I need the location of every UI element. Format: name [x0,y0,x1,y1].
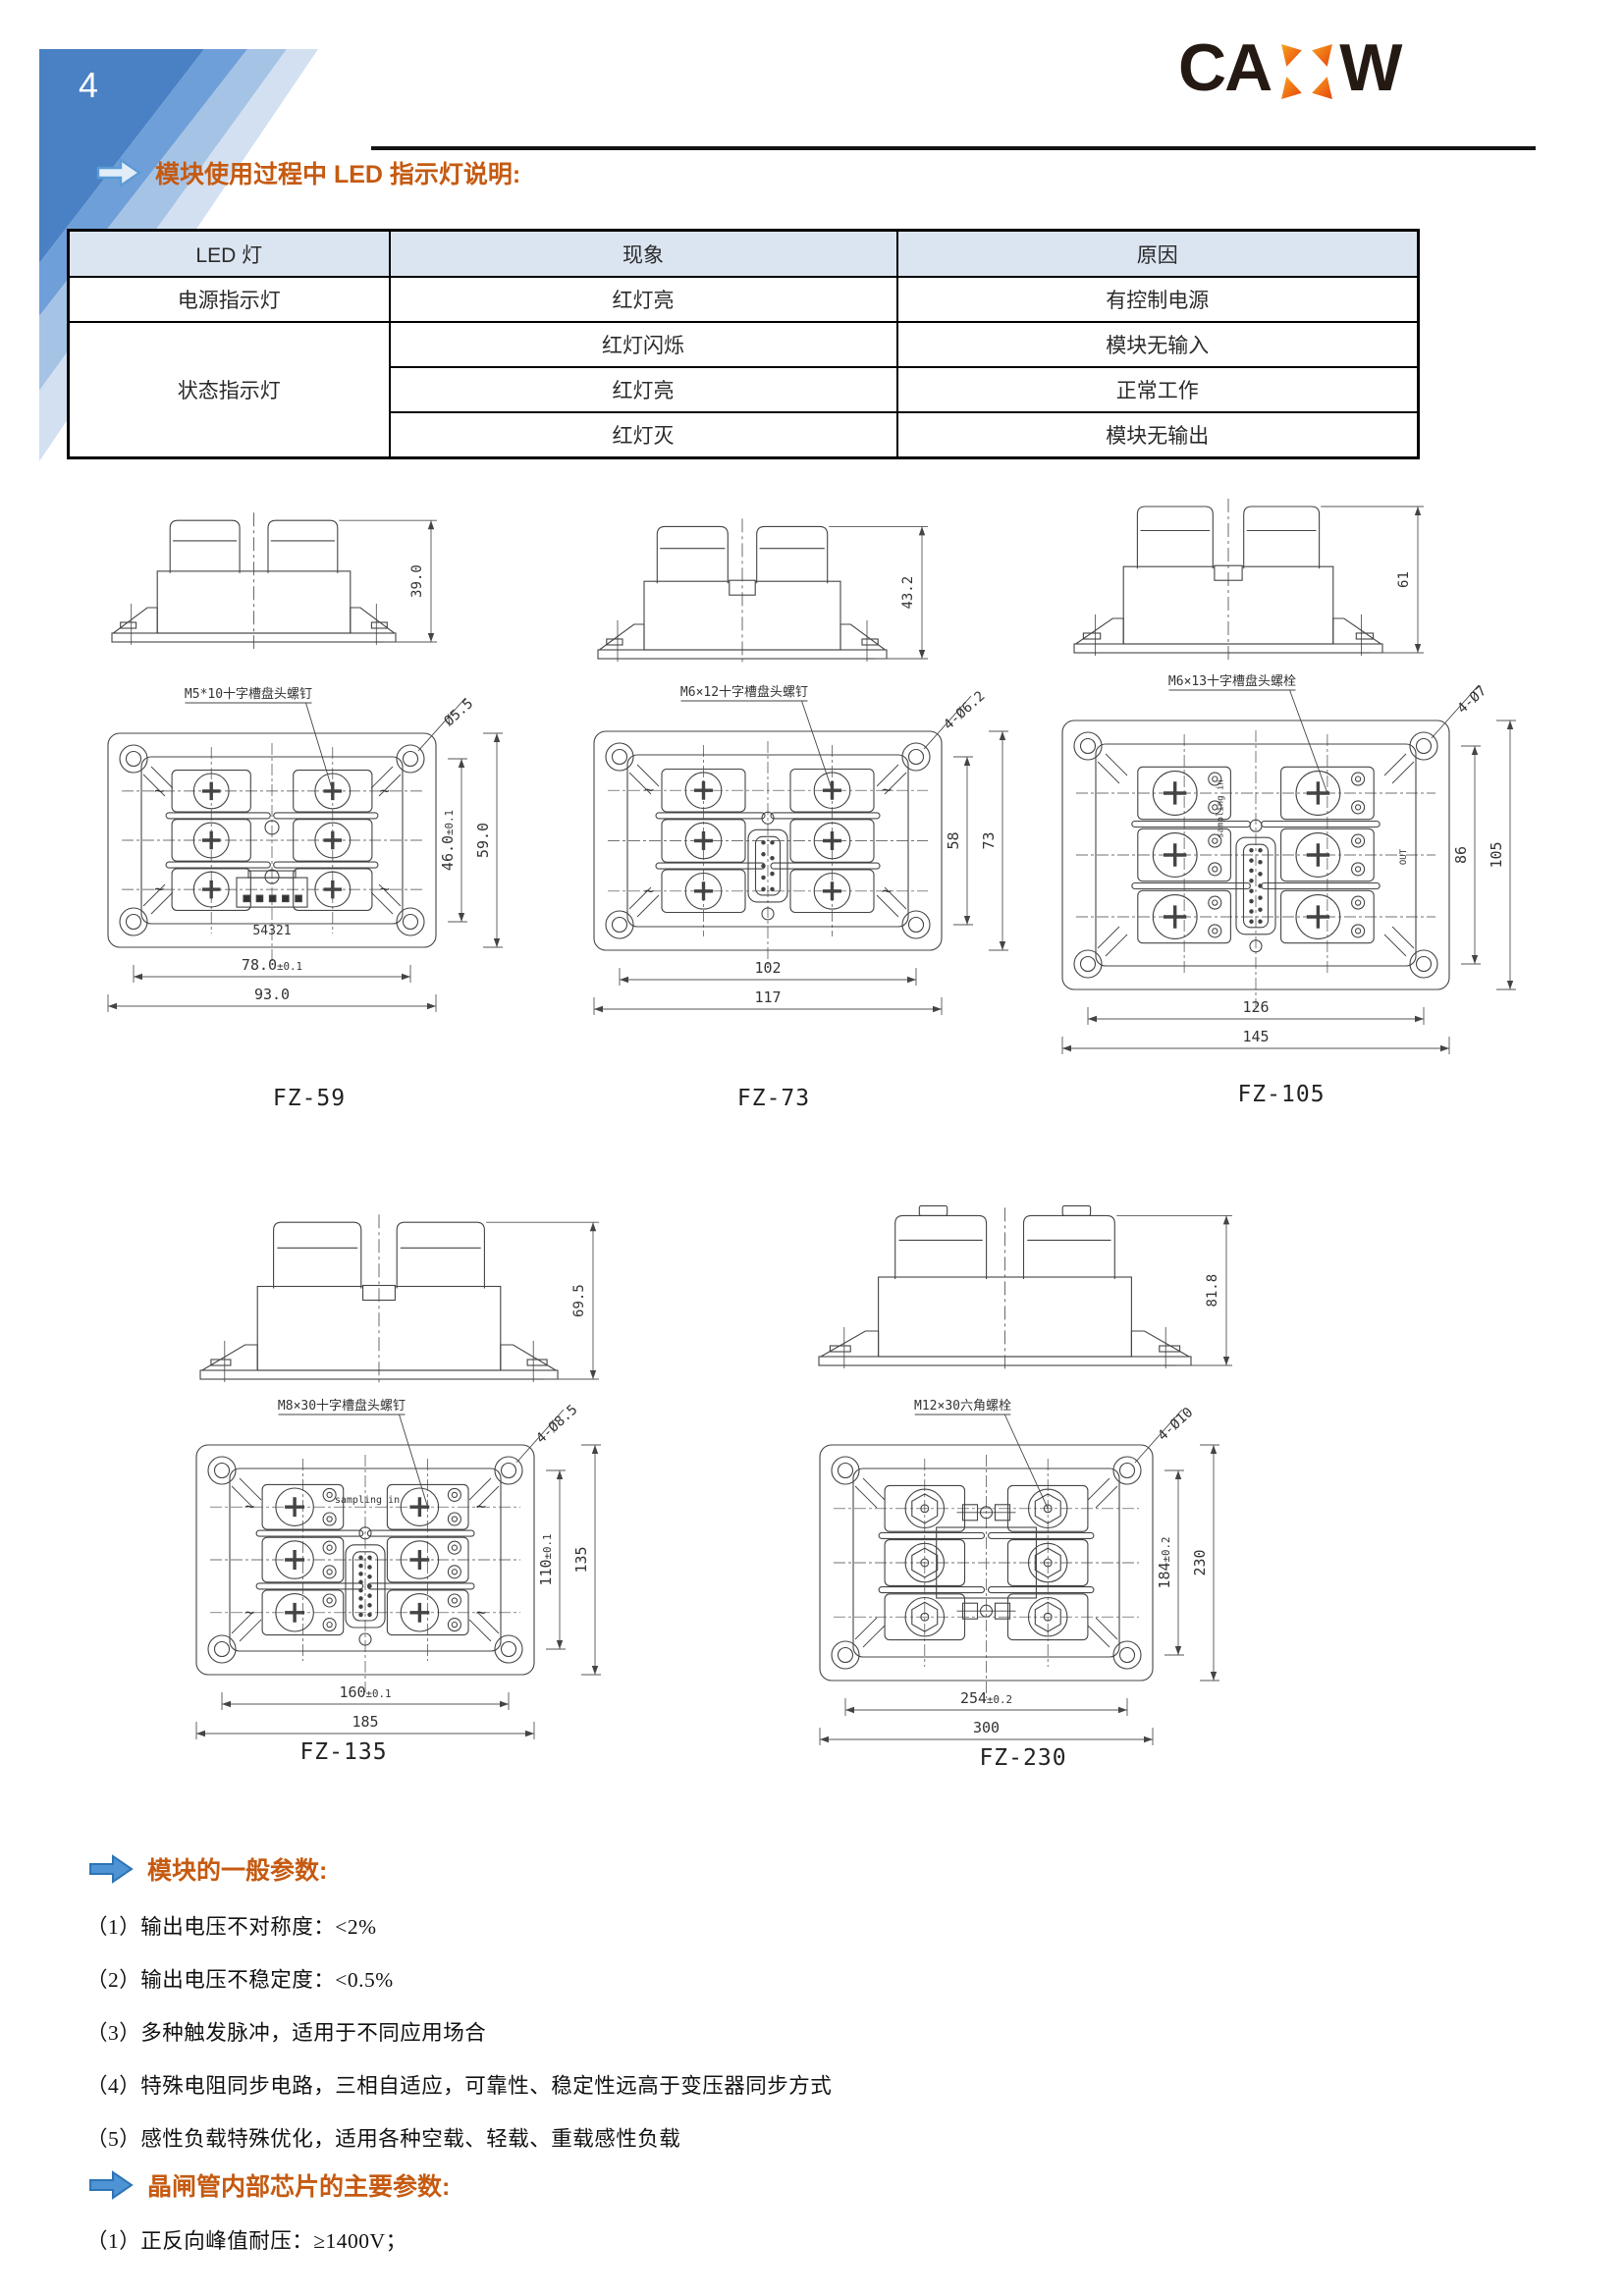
chip-params-list: （1）正反向峰值耐压：≥1400V； [86,2224,1216,2277]
general-params-list: （1）输出电压不对称度：<2%（2）输出电压不稳定度：<0.5%（3）多种触发脉… [86,1910,1216,2175]
svg-text:~: ~ [882,881,892,901]
fz105-out-label: OUT [1399,848,1409,865]
logo-text-right: W [1339,29,1400,106]
fz135-height-dim: 69.5 [571,1284,587,1317]
fz73-caption: FZ-73 [737,1086,810,1111]
fz230-dim-h-outer: 300 [973,1719,1000,1736]
fz59-hole-label: Ø5.5 [441,696,476,729]
fz59-dim-h-inner: 78.0±0.1 [242,956,302,974]
param-item-2: （2）输出电压不稳定度：<0.5% [86,1963,1216,1994]
header-rule [371,146,1536,150]
fz105-height-dim: 61 [1396,571,1412,588]
fz59-connector-label: 54321 [252,924,291,938]
fz59-caption: FZ-59 [273,1086,346,1111]
fz105-extra-label: sampling in [1217,779,1226,838]
svg-text:~: ~ [154,880,164,899]
params-section-heading: 模块的一般参数: [88,1851,327,1887]
cell-phenomenon: 红灯闪烁 [390,322,897,367]
logo-text-left: CA [1178,29,1271,106]
fz105-dim-v-inner: 86 [1452,846,1470,864]
svg-text:~: ~ [476,1603,486,1623]
fz73-front-view: ~~~~M6×12十字槽盘头螺钉4-Ø6.25873102117 [584,680,1026,1019]
fz135-dim-v-outer: 135 [572,1546,590,1573]
arrow-right-icon [88,2169,134,2201]
fz73-dim-v-inner: 58 [945,831,962,849]
param-item-4: （4）特殊电阻同步电路，三相自适应，可靠性、稳定性远高于变压器同步方式 [86,2069,1216,2100]
cell-reason: 有控制电源 [897,277,1419,322]
fz135-side-view: 69.5 [196,1203,609,1392]
fz135-front-view: ~~~~sampling inM8×30十字槽盘头螺钉4-Ø8.5110±0.1… [187,1394,619,1743]
page-number: 4 [79,65,98,106]
fz73-height-dim: 43.2 [900,576,916,610]
logo: CA W [1178,29,1400,106]
fz230-caption: FZ-230 [979,1745,1066,1771]
cell-led: 电源指示灯 [69,277,390,322]
led-heading-text: 模块使用过程中 LED 指示灯说明: [155,155,520,190]
cell-reason: 模块无输出 [897,412,1419,458]
arrow-right-icon [96,157,141,188]
fz135-dim-v-inner: 110±0.1 [537,1533,555,1585]
fz105-dim-h-outer: 145 [1242,1028,1269,1045]
arrow-right-icon [88,1853,134,1885]
svg-text:~: ~ [154,781,164,801]
fz73-dim-v-outer: 73 [980,831,998,849]
col-header-reason: 原因 [897,231,1419,278]
fz59-side-view: 39.0 [108,506,447,655]
fz135-extra-label: sampling in [335,1495,400,1506]
svg-text:~: ~ [644,881,654,901]
fz230-hole-label: 4-Ø10 [1155,1405,1196,1444]
fz59-front-view: ~~~~54321M5*10十字槽盘头螺钉Ø5.546.0±0.159.078.… [98,682,520,1016]
fz59-height-dim: 39.0 [409,564,425,598]
fz59-dim-v-outer: 59.0 [474,823,492,858]
fz73-dim-h-inner: 102 [754,959,781,977]
param-item-3: （3）多种触发脉冲，适用于不同应用场合 [86,2016,1216,2047]
fz105-caption: FZ-105 [1237,1082,1325,1107]
fz105-front-view: sampling inOUTM6×13十字槽盘头螺栓4-Ø78610512614… [1053,669,1534,1058]
fz230-dim-v-outer: 230 [1191,1549,1209,1575]
fz105-side-view: 61 [1070,489,1434,666]
fz105-screw-label: M6×13十字槽盘头螺栓 [1168,673,1296,689]
svg-text:~: ~ [380,781,390,801]
fz230-screw-label: M12×30六角螺栓 [914,1399,1011,1414]
table-row: 电源指示灯 红灯亮 有控制电源 [69,277,1419,322]
fz73-dim-h-outer: 117 [754,988,781,1006]
fz135-screw-label: M8×30十字槽盘头螺钉 [278,1398,406,1414]
cell-reason: 模块无输入 [897,322,1419,367]
param-item-5: （5）感性负载特殊优化，适用各种空载、轻载、重载感性负载 [86,2122,1216,2153]
col-header-phenomenon: 现象 [390,231,897,278]
cell-phenomenon: 红灯灭 [390,412,897,458]
logo-x-icon [1278,43,1335,100]
col-header-led: LED 灯 [69,231,390,278]
fz230-front-view: M12×30六角螺栓4-Ø10184±0.2230254±0.2300 [810,1394,1237,1749]
fz230-dim-v-inner: 184±0.2 [1156,1536,1173,1588]
fz105-dim-v-outer: 105 [1488,841,1505,868]
fz135-caption: FZ-135 [299,1739,387,1765]
svg-text:~: ~ [244,1603,254,1623]
fz135-dim-h-outer: 185 [352,1713,378,1731]
cell-phenomenon: 红灯亮 [390,277,897,322]
fz59-dim-h-outer: 93.0 [254,986,290,1003]
fz73-side-view: 43.2 [594,510,938,671]
fz105-hole-label: 4-Ø7 [1454,683,1489,717]
table-header-row: LED 灯 现象 原因 [69,231,1419,278]
chip-section-heading: 晶闸管内部芯片的主要参数: [88,2167,450,2203]
fz105-dim-h-inner: 126 [1242,998,1269,1016]
chip-heading-text: 晶闸管内部芯片的主要参数: [147,2167,450,2203]
led-indicator-table: LED 灯 现象 原因 电源指示灯 红灯亮 有控制电源 状态指示灯 红灯闪烁 模… [67,229,1420,459]
fz230-dim-h-inner: 254±0.2 [960,1689,1012,1707]
datasheet-page: 4 CA W 模块使用过程中 LED 指示灯说明: LED 灯 [0,0,1624,2296]
fz230-height-dim: 81.8 [1205,1274,1220,1308]
led-section-heading: 模块使用过程中 LED 指示灯说明: [96,155,520,190]
fz73-screw-label: M6×12十字槽盘头螺钉 [680,684,808,700]
chip-param-item-1: （1）正反向峰值耐压：≥1400V； [86,2224,1216,2255]
fz135-dim-h-inner: 160±0.1 [339,1683,391,1701]
table-row: 状态指示灯 红灯闪烁 模块无输入 [69,322,1419,367]
svg-text:~: ~ [644,780,654,800]
svg-text:~: ~ [476,1497,486,1517]
fz135-hole-label: 4-Ø8.5 [533,1402,580,1447]
cell-reason: 正常工作 [897,367,1419,412]
svg-text:~: ~ [380,880,390,899]
svg-text:~: ~ [244,1497,254,1517]
params-heading-text: 模块的一般参数: [147,1851,327,1887]
svg-text:~: ~ [882,780,892,800]
fz59-screw-label: M5*10十字槽盘头螺钉 [185,686,312,702]
fz230-side-view: 81.8 [815,1198,1242,1378]
fz73-hole-label: 4-Ø6.2 [941,688,988,733]
cell-phenomenon: 红灯亮 [390,367,897,412]
param-item-1: （1）输出电压不对称度：<2% [86,1910,1216,1941]
fz59-dim-v-inner: 46.0±0.1 [439,810,457,871]
cell-led: 状态指示灯 [69,322,390,458]
